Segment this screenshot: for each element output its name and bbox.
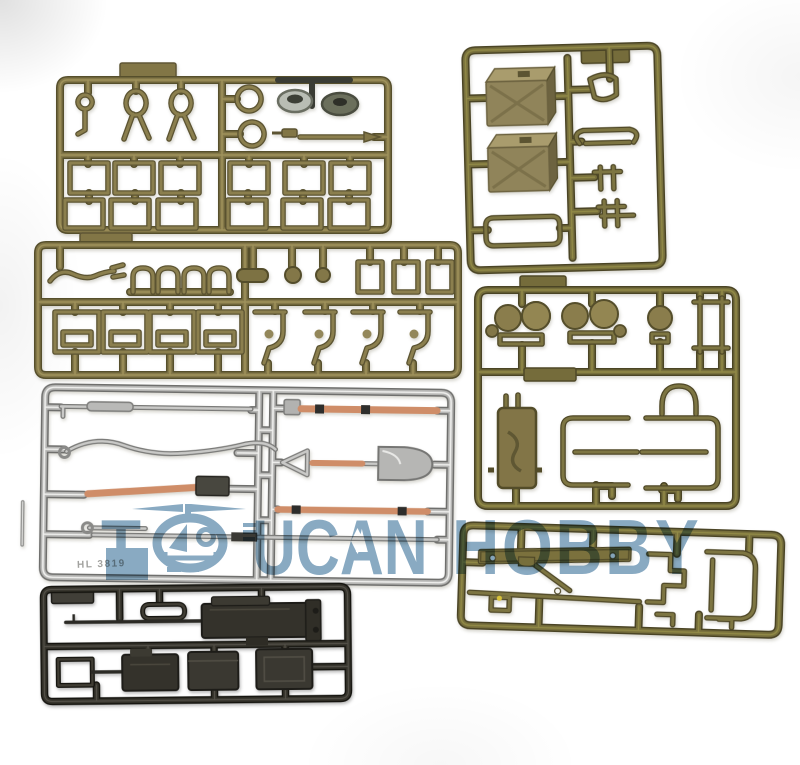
sprue-bottom-left-machine-guns	[43, 586, 348, 701]
sprue-bottom-right-fender-plate	[461, 525, 782, 635]
battery-box-part	[488, 408, 542, 488]
sprue-photo-art	[0, 0, 800, 765]
clip-part	[518, 557, 534, 566]
tool-handle-rod	[278, 509, 428, 511]
ammo-box-part	[256, 649, 312, 690]
ammo-box-part	[188, 652, 238, 691]
sprue-top-left-hatch-frames	[60, 63, 388, 230]
plate-hole	[610, 553, 616, 559]
fuel-can-part	[486, 67, 556, 126]
sledgehammer-tool	[88, 475, 229, 496]
sprue-middle-brackets	[38, 233, 458, 375]
periscope-parts	[278, 80, 358, 115]
sprue-right-headlights	[478, 276, 736, 506]
product-photo-canvas: HL 3819 T UCAN HOBBY	[0, 0, 800, 765]
molded-label-bar	[524, 368, 576, 381]
cleaning-rod-section	[87, 402, 133, 412]
sprue-top-right-fuel-cans	[465, 46, 663, 271]
light-machine-gun-part	[92, 648, 178, 691]
axe-tool	[284, 400, 437, 417]
fuel-can-part	[487, 133, 557, 192]
heavy-machine-gun-part	[66, 596, 321, 648]
plate-hole	[490, 555, 496, 561]
sprue-silver-pioneer-tools	[22, 387, 452, 583]
molded-part-number: HL 3819	[77, 558, 126, 571]
plate-hole	[555, 588, 561, 594]
